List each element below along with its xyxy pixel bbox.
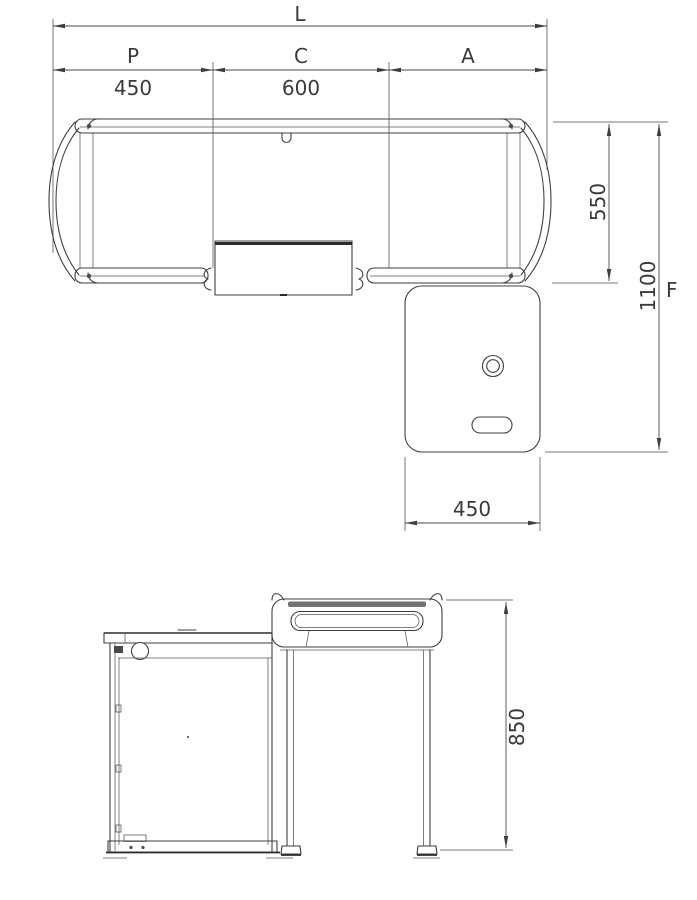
dim-value-desk-depth: 550	[586, 183, 610, 221]
technical-drawing-page: L P C A 450 600	[0, 0, 697, 900]
desk-top-view	[49, 119, 551, 295]
side-elevation-view	[103, 594, 442, 858]
depth-dimensions: 550 1100 F	[545, 122, 678, 452]
side-grommet	[132, 643, 149, 660]
desk-front-edge-right	[367, 268, 525, 283]
dim-value-height: 850	[505, 708, 529, 746]
grommet-outer-ring	[483, 356, 504, 377]
technical-drawing: L P C A 450 600	[0, 0, 697, 900]
dim-label-overall-length: L	[294, 2, 306, 26]
return-top-view	[405, 286, 540, 452]
base-screw-1	[129, 846, 132, 849]
bumper-seam-right	[405, 631, 408, 647]
corner-clamp-bottom-left	[87, 274, 91, 278]
panel-speck	[187, 736, 189, 738]
bumper-top-shading	[288, 602, 426, 608]
return-worktop	[104, 633, 272, 643]
desk-back-edge	[75, 119, 525, 133]
height-dimension: 850	[440, 600, 529, 850]
dim-value-segment-c: 600	[282, 76, 320, 100]
return-base-rail	[108, 841, 277, 852]
right-bow-edge-inner	[521, 128, 544, 275]
corner-clamp-bottom-right	[509, 274, 513, 278]
dim-label-overall-depth-f: F	[666, 278, 678, 302]
dim-label-segment-p: P	[127, 44, 139, 68]
bumper-seam-left	[306, 631, 309, 647]
dim-value-return-width: 450	[453, 497, 491, 521]
corner-clamp-top-right	[509, 124, 513, 128]
base-screw-2	[141, 846, 144, 849]
desk-front-edge-left	[75, 268, 208, 283]
corner-clamp-top-left	[87, 124, 91, 128]
return-side-view	[104, 630, 280, 853]
dim-label-segment-a: A	[461, 44, 475, 68]
dim-value-overall-depth: 1100	[636, 261, 660, 312]
handle-slot	[472, 417, 512, 433]
tray-bracket-right	[356, 268, 363, 290]
desk-foot-right	[417, 846, 437, 854]
desk-foot-left	[281, 846, 301, 854]
slide-clip-2	[116, 765, 121, 772]
desk-end-view	[272, 594, 442, 855]
dim-value-segment-p: 450	[114, 76, 152, 100]
back-edge-notch	[282, 133, 291, 142]
return-width-dimension: 450	[405, 457, 540, 531]
grommet-inner-ring	[487, 360, 500, 373]
keyboard-tray	[215, 241, 352, 295]
corner-bracket-side	[114, 646, 123, 653]
slide-clip-3	[116, 825, 121, 832]
plan-dimensions: L P C A 450 600	[53, 2, 547, 268]
dim-label-segment-c: C	[294, 44, 308, 68]
slide-clip-1	[116, 705, 121, 712]
left-bow-edge-inner	[56, 128, 79, 275]
